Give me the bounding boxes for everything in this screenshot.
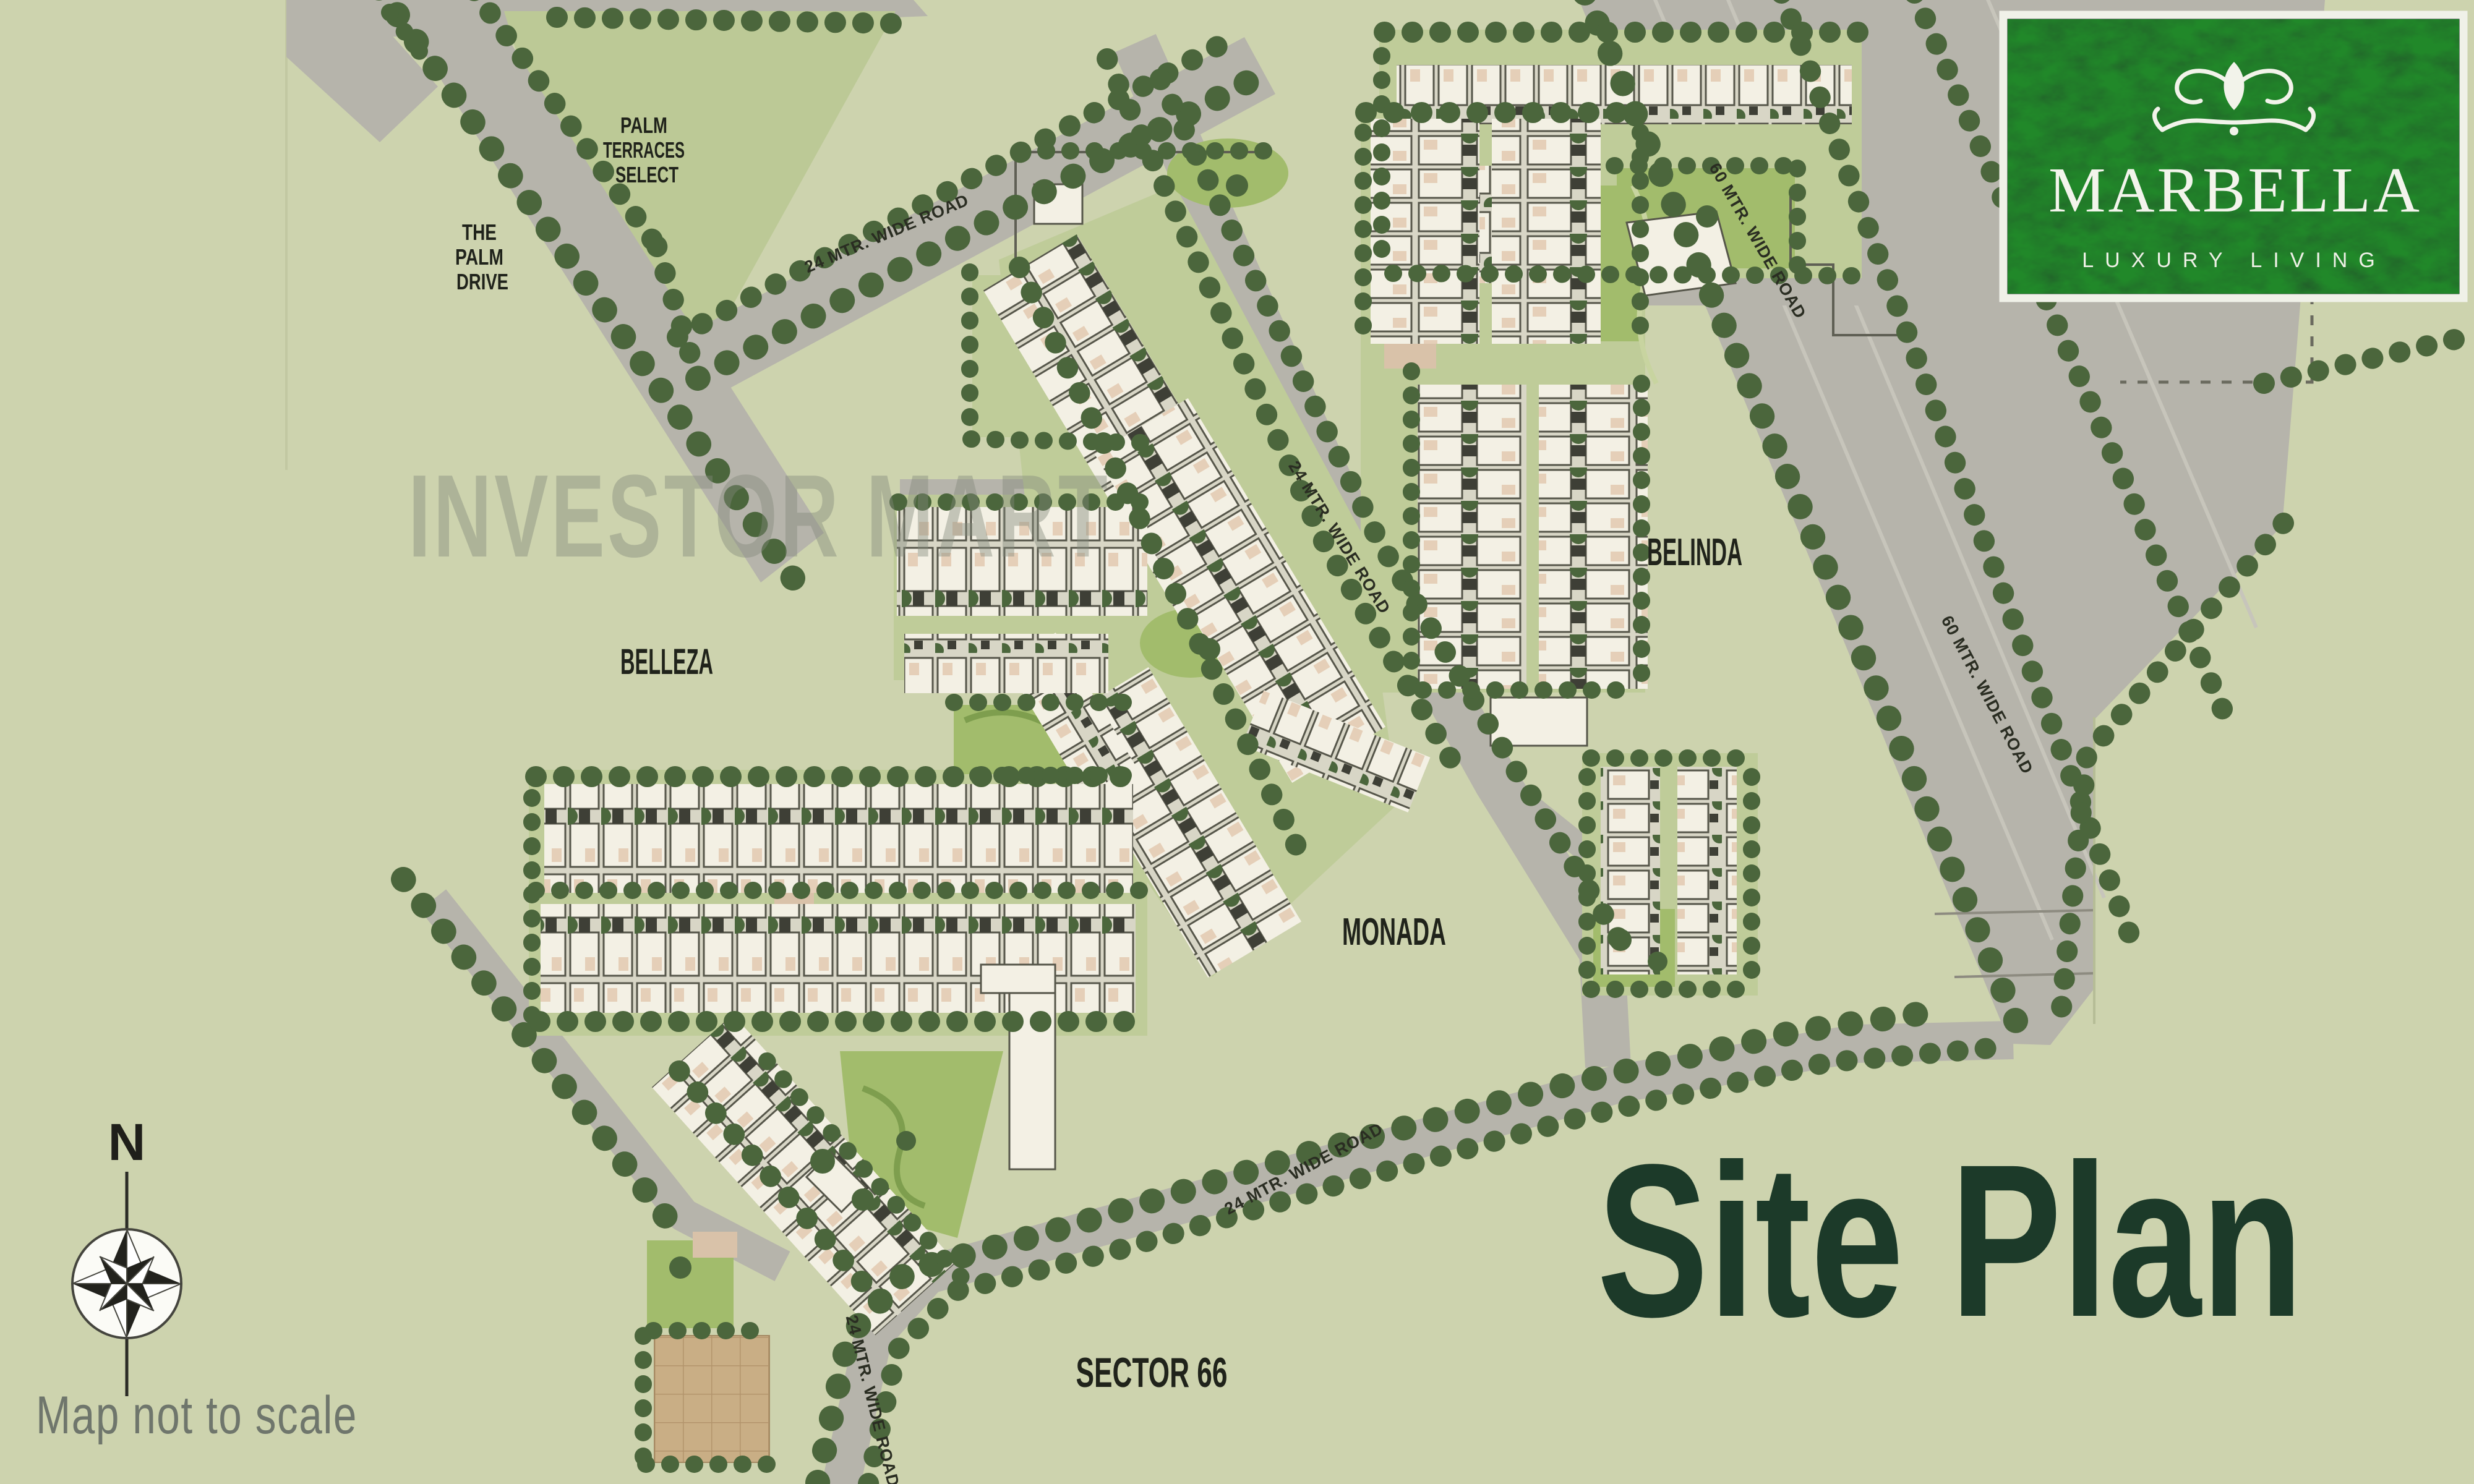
- building: [981, 965, 1055, 993]
- site-plan-map: INVESTOR MART PALM TERRACES SELECT THE P…: [0, 0, 2474, 1484]
- label-sector-66: SECTOR 66: [1076, 1349, 1228, 1396]
- site-plan-page: INVESTOR MART PALM TERRACES SELECT THE P…: [0, 0, 2474, 1484]
- housing-row: [1677, 767, 1737, 974]
- label-belleza: BELLEZA: [620, 642, 713, 682]
- housing-row: [1539, 385, 1648, 689]
- watermark-text: INVESTOR MART: [408, 451, 1110, 582]
- compass-north-label: N: [108, 1113, 146, 1171]
- orchard-plot: [654, 1336, 769, 1462]
- logo-title: MARBELLA: [2048, 155, 2420, 226]
- housing-row: [1492, 119, 1601, 344]
- logo-tagline: LUXURY LIVING: [2082, 249, 2386, 272]
- paving: [693, 1232, 737, 1258]
- label-belinda: BELINDA: [1647, 531, 1742, 574]
- label-palm-drive: THE PALM DRIVE: [455, 220, 510, 294]
- logo-card: MARBELLA LUXURY LIVING: [2003, 15, 2463, 298]
- page-title: Site Plan: [1597, 1119, 2303, 1362]
- building: [1009, 980, 1055, 1169]
- map-disclaimer: Map not to scale: [36, 1386, 357, 1445]
- label-monada: MONADA: [1342, 911, 1446, 953]
- housing-row: [904, 634, 1108, 693]
- housing-row: [1418, 385, 1526, 689]
- housing-row: [544, 784, 1133, 893]
